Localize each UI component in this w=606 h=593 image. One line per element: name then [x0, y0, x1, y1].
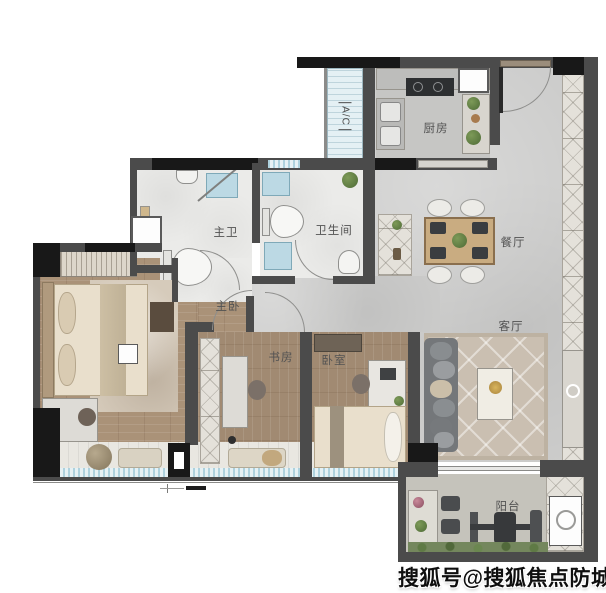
scale-line [160, 488, 184, 489]
placemat [472, 222, 488, 234]
divider-wall-left [398, 462, 438, 477]
bathroom-plant [342, 172, 358, 188]
dining-centerpiece-plant [452, 233, 467, 248]
bedroom-plant-pot [86, 444, 112, 470]
sliding-door-track [438, 466, 540, 471]
room-label-balcony: 阳台 [496, 498, 521, 514]
right-wall [584, 57, 598, 560]
tv-panel [562, 350, 584, 448]
bathroom-toilet-tank [262, 208, 270, 236]
second-bed-pillow [384, 412, 402, 462]
dining-chair [427, 266, 452, 284]
bathroom-sink-counter [262, 172, 290, 196]
sofa-pillow [433, 361, 455, 379]
sofa-pillow [430, 342, 452, 360]
placemat [430, 247, 446, 259]
bottom-edge-wall [33, 477, 398, 481]
balcony-flowers [415, 520, 427, 532]
vanity-stool [78, 408, 96, 426]
entry-door-panel [500, 60, 551, 67]
master-pillow [58, 344, 76, 386]
master-headboard [42, 282, 54, 398]
balcony-left-wall [398, 470, 406, 562]
bathroom-right-wall [363, 158, 375, 284]
fridge [458, 68, 489, 93]
kitchen-bowl [471, 114, 480, 123]
study-cushion-pillow [262, 450, 282, 466]
master-bath-step-wall [137, 265, 177, 273]
bedroom-chair [352, 374, 370, 394]
bathroom-shower-tray [264, 242, 292, 270]
floor-plan: 厨房 A/C 卫生间 主卫 餐厅 主卧 客厅 书房 卧室 阳台 搜狐号@搜狐焦点… [0, 0, 606, 593]
window-seat-cushion [118, 448, 162, 468]
bath-divider-wall [252, 163, 260, 243]
burner-icon [433, 82, 443, 92]
room-label-living: 客厅 [499, 318, 524, 334]
cabinet-decor [393, 248, 401, 260]
sink-basin [380, 126, 401, 146]
ac-left-rail [324, 68, 327, 162]
exercise-machine-post [530, 510, 542, 544]
study-lamp [228, 436, 236, 444]
cabinet-plant [392, 220, 402, 230]
dining-chair [427, 199, 452, 217]
master-shower-tray [206, 173, 238, 198]
study-bedroom-wall [300, 332, 312, 477]
left-top-column [33, 243, 60, 277]
master-pillow [58, 292, 76, 334]
room-label-kitchen: 厨房 [424, 120, 449, 136]
sink-basin [380, 102, 401, 122]
bedroom-wardrobe [314, 334, 362, 352]
balcony-chair [441, 519, 460, 534]
washer-drum [556, 510, 576, 530]
top-wall-black-left [297, 57, 400, 68]
dining-chair [460, 266, 485, 284]
room-label-master-bath: 主卫 [214, 224, 239, 240]
coffee-table [477, 368, 513, 420]
room-label-ac: A/C [339, 102, 352, 130]
bed-bench [150, 302, 174, 332]
bottom-edge-trim [33, 482, 398, 483]
sofa-pillow [430, 380, 452, 398]
exercise-machine-seat [494, 512, 516, 544]
tv-decor-ring [566, 384, 580, 398]
kitchen-plant [466, 130, 481, 145]
sofa-pillow [433, 399, 455, 417]
bathroom-pedestal-sink [338, 250, 360, 274]
placemat [472, 247, 488, 259]
room-label-study: 书房 [269, 349, 294, 365]
dining-chair [460, 199, 485, 217]
master-bath-faucet [176, 170, 198, 184]
kitchen-left-wall [363, 68, 375, 160]
room-label-bedroom: 卧室 [322, 352, 347, 368]
bedroom-living-wall [408, 332, 420, 443]
second-bed-runner [330, 406, 344, 468]
balcony-chair [441, 496, 460, 511]
bedroom-desk-plant [394, 396, 404, 406]
study-desk [222, 356, 248, 428]
master-study-wall [185, 322, 198, 445]
folded-blanket [118, 344, 138, 364]
laptop [380, 368, 396, 380]
master-top-black [85, 243, 135, 252]
room-label-dining: 餐厅 [501, 234, 526, 250]
left-bottom-column [33, 408, 60, 480]
master-wardrobe [60, 251, 137, 277]
master-duvet-fold [100, 284, 126, 396]
balcony-flowers [413, 497, 424, 508]
bathroom-window [268, 160, 300, 168]
study-bookshelf [200, 338, 220, 464]
room-label-master-bedroom: 主卧 [216, 298, 241, 314]
master-bath-inner-wall [172, 258, 178, 302]
scale-bar [186, 486, 206, 490]
bathroom-bottom-wall-right [333, 276, 375, 284]
divider-wall-right [540, 460, 584, 477]
mid-band-black-left [152, 158, 258, 170]
placemat [430, 222, 446, 234]
room-label-bathroom: 卫生间 [315, 222, 353, 238]
mullion-inner [174, 452, 184, 469]
kitchen-pass-opening [418, 160, 488, 168]
study-chair [248, 380, 266, 400]
burner-icon [413, 82, 423, 92]
bathroom-bottom-wall-left [252, 276, 295, 284]
bottom-window-glass [58, 468, 398, 477]
balcony-bottom-wall [398, 552, 598, 562]
watermark-text: 搜狐号@搜狐焦点防城港站 [398, 562, 606, 592]
kitchen-plant [467, 97, 480, 110]
coffee-table-gold-tray [489, 381, 502, 394]
